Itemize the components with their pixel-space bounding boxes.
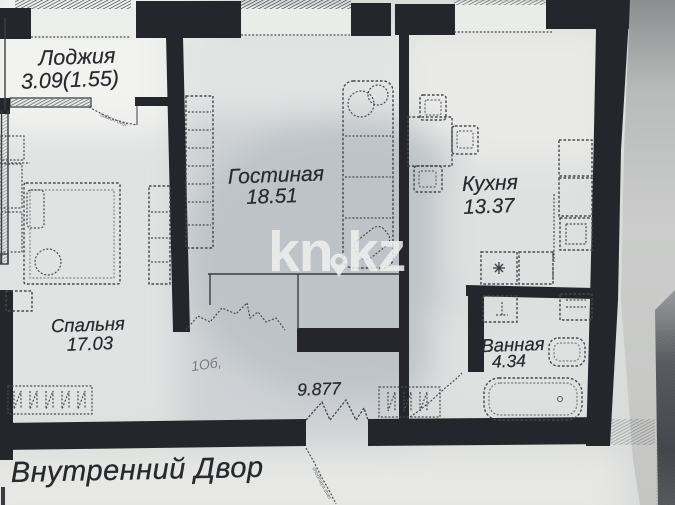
svg-text:3.09(1.55): 3.09(1.55) bbox=[21, 66, 120, 93]
svg-text:13.37: 13.37 bbox=[463, 194, 517, 219]
svg-text:kn: kn bbox=[268, 220, 333, 284]
svg-text:Кухня: Кухня bbox=[462, 171, 519, 196]
svg-text:18.51: 18.51 bbox=[246, 184, 298, 209]
svg-text:17.03: 17.03 bbox=[66, 332, 114, 355]
svg-text:kz: kz bbox=[347, 220, 405, 284]
svg-text:Внутренний Двор: Внутренний Двор bbox=[10, 452, 263, 489]
svg-text:4.34: 4.34 bbox=[492, 350, 527, 371]
svg-text:9.877: 9.877 bbox=[297, 378, 343, 400]
